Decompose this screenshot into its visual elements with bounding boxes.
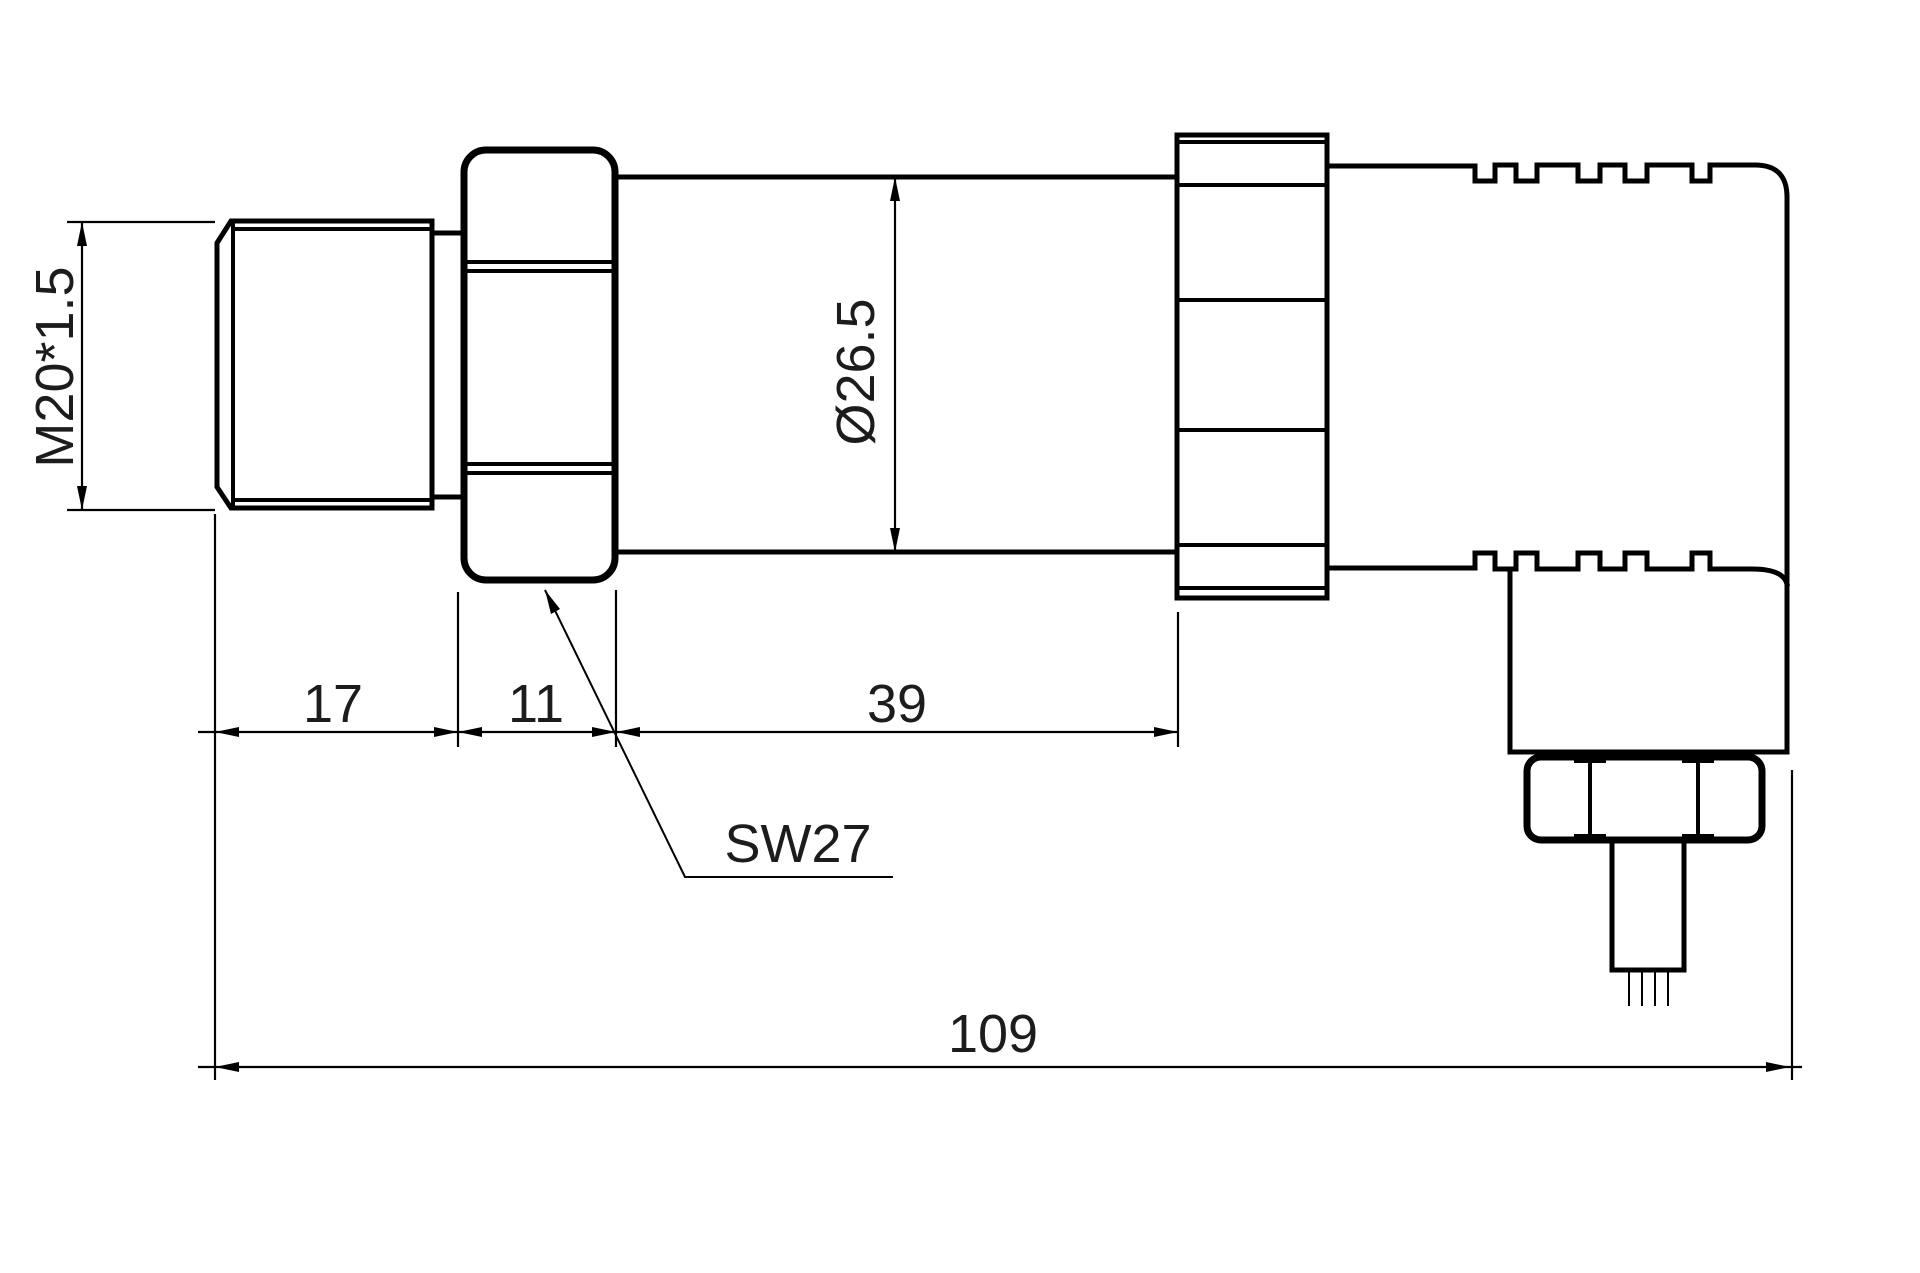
cable-tube [1612, 840, 1684, 970]
overall-length-label: 109 [948, 1004, 1038, 1064]
hex-length-label: 11 [508, 674, 564, 734]
knurled-ring [1177, 135, 1327, 598]
dim-chain-17-11-39: 17 11 39 [198, 514, 1178, 1080]
dim-overall-109: 109 [198, 770, 1802, 1080]
ring-outline [1177, 135, 1327, 598]
wire-leads [1629, 970, 1668, 1006]
dim-body-diameter: Ø26.5 [826, 177, 900, 552]
connector-lower-box [1510, 569, 1787, 752]
dim-thread-m20: M20*1.5 [25, 222, 215, 510]
connector-fins-bottom [1327, 553, 1787, 584]
body-length-label: 39 [867, 674, 927, 734]
wrench-size-label: SW27 [724, 814, 871, 874]
connector-fins-top [1327, 165, 1787, 197]
drawing-canvas: M20*1.5 Ø26.5 17 11 39 SW27 [0, 0, 1920, 1273]
thread-length-label: 17 [303, 674, 363, 734]
hex-nut-sw27 [464, 150, 615, 580]
gland-outline [1527, 757, 1762, 840]
connector-housing [1327, 165, 1787, 752]
thread-section [217, 221, 432, 508]
cable-gland-nut [1527, 757, 1762, 840]
thread-outline [217, 221, 432, 508]
thread-spec-label: M20*1.5 [25, 266, 85, 467]
thread-neck [432, 233, 464, 497]
technical-drawing: M20*1.5 Ø26.5 17 11 39 SW27 [0, 0, 1920, 1273]
body-diameter-label: Ø26.5 [826, 298, 886, 445]
hex-outline [464, 150, 615, 580]
